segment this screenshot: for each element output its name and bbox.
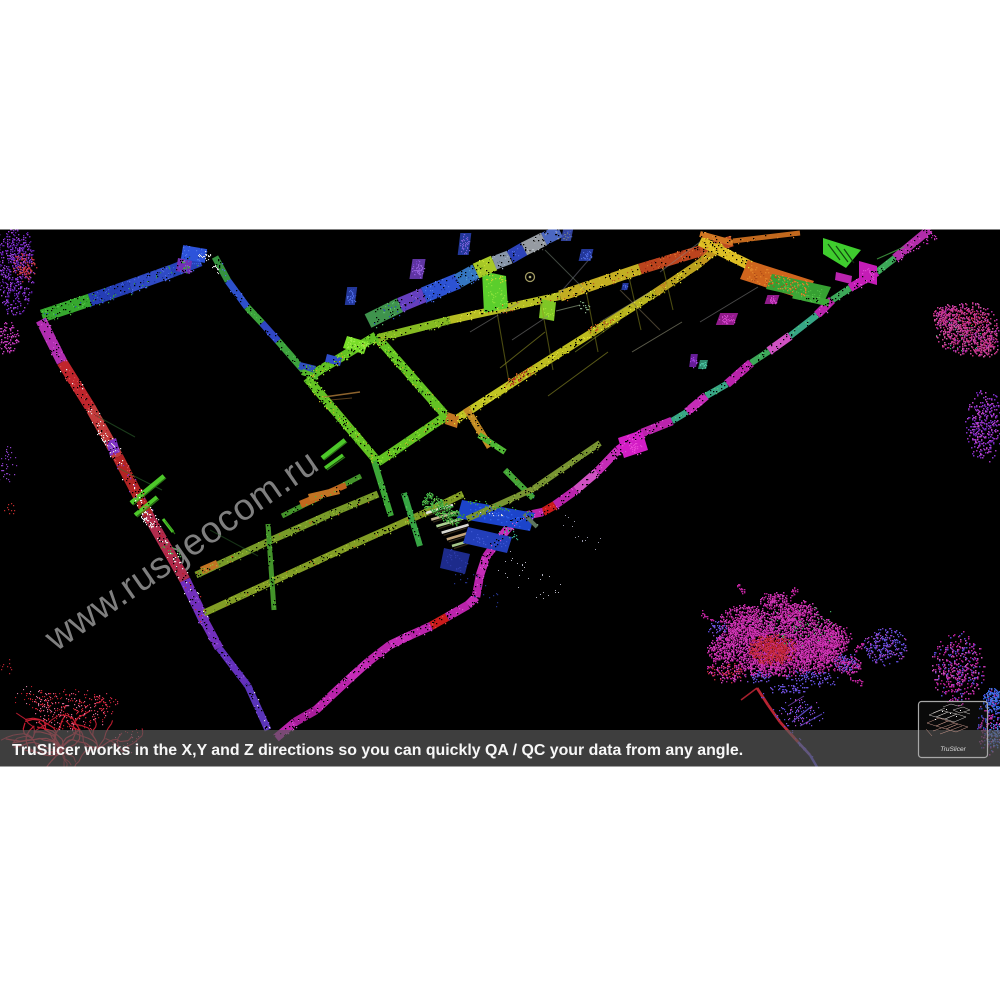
svg-text:TruSlicer works in the X,Y and: TruSlicer works in the X,Y and Z directi… — [12, 742, 743, 759]
svg-text:TruSlicer: TruSlicer — [940, 746, 966, 753]
